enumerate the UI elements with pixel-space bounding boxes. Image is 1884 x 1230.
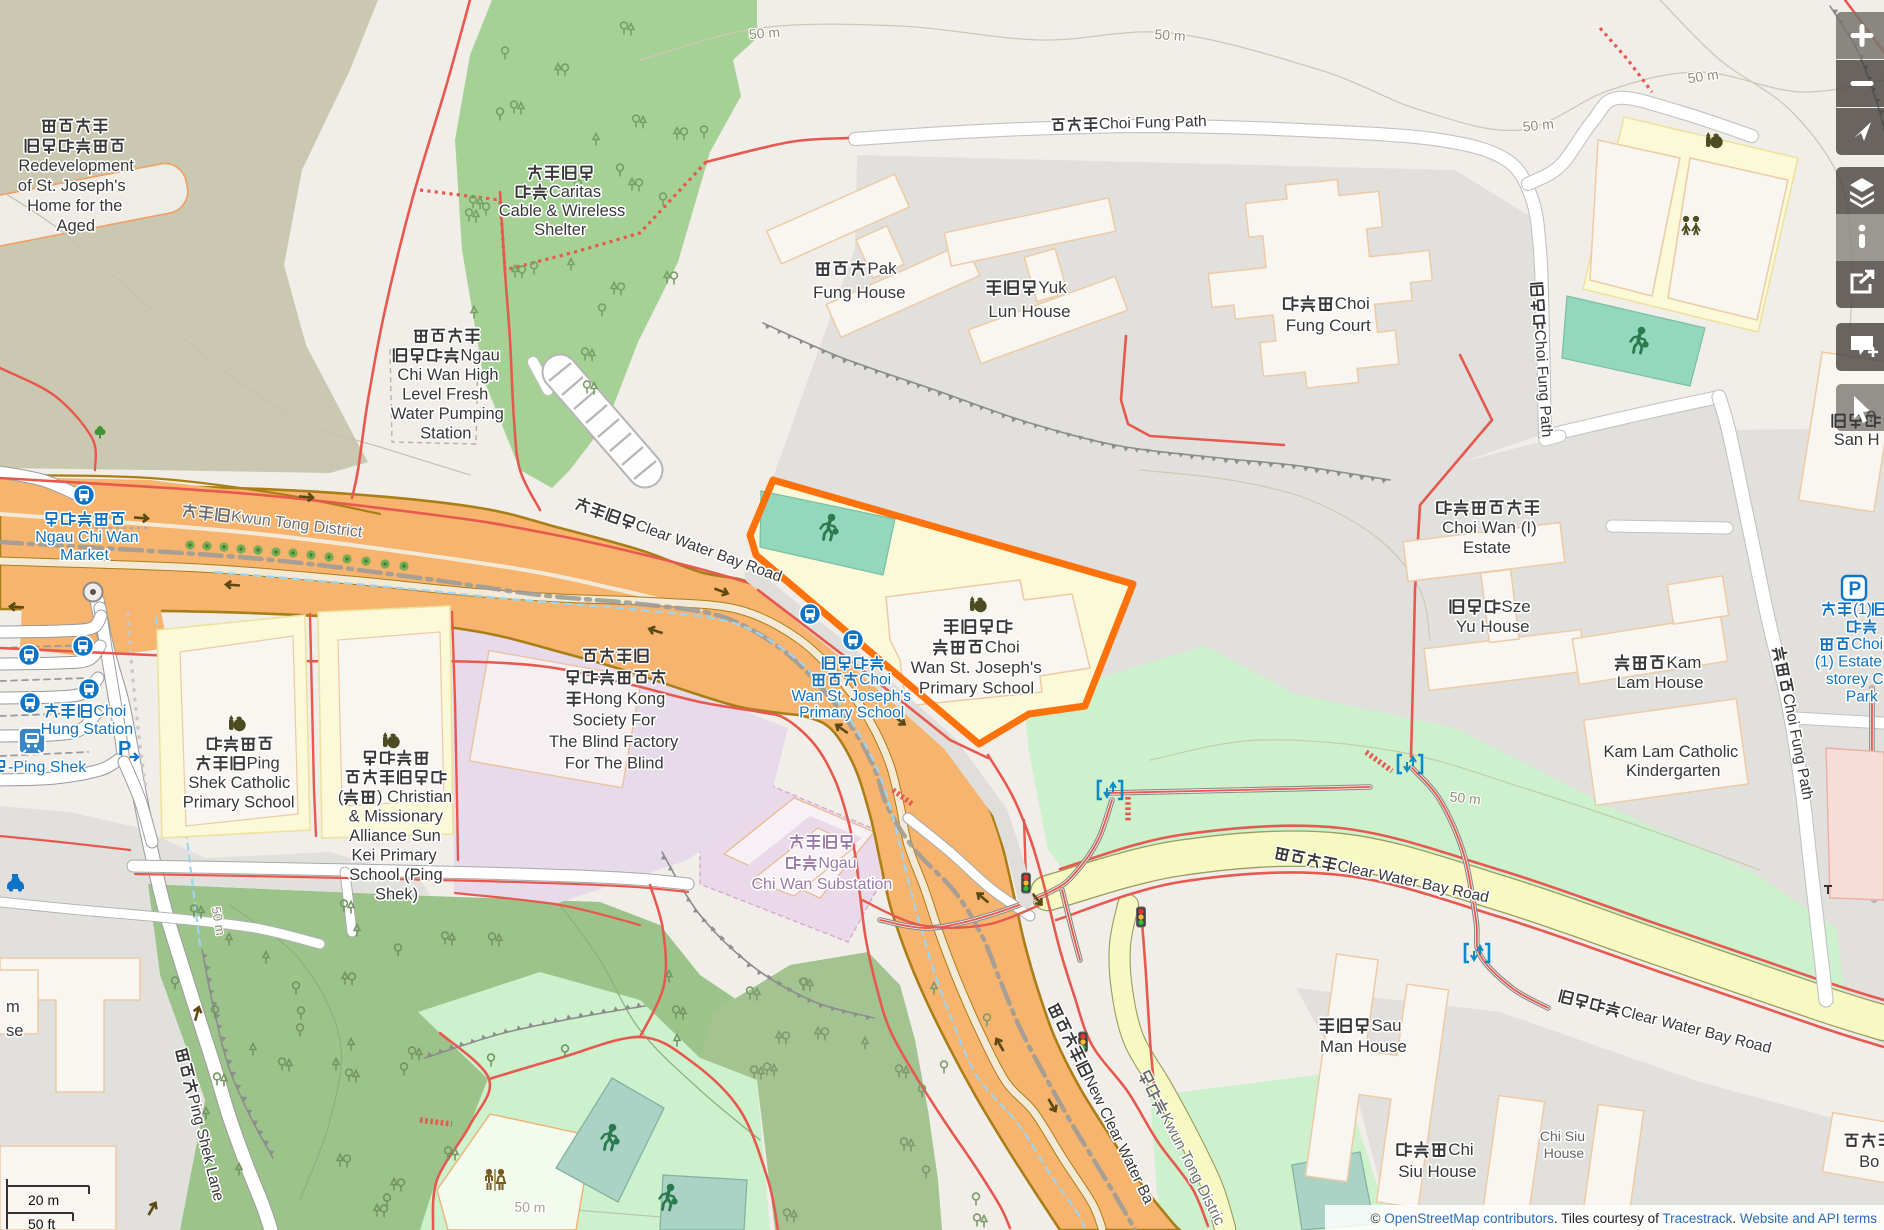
- svg-text:of St. Joseph's: of St. Joseph's: [18, 177, 126, 195]
- svg-text:Yuk: Yuk: [1038, 278, 1067, 297]
- svg-text:Shek): Shek): [375, 886, 418, 904]
- svg-text:(: (: [338, 788, 344, 806]
- svg-text:50 m: 50 m: [1154, 26, 1186, 44]
- svg-text:Choi: Choi: [859, 672, 891, 689]
- svg-text:Hong Kong: Hong Kong: [583, 690, 666, 708]
- svg-text:storey Car: storey Car: [1826, 671, 1884, 688]
- svg-text:Chi Siu: Chi Siu: [1540, 1128, 1585, 1144]
- svg-text:(1): (1): [1853, 601, 1872, 618]
- svg-text:Water Pumping: Water Pumping: [391, 405, 504, 423]
- svg-text:School (Ping: School (Ping: [349, 866, 443, 884]
- svg-text:San H: San H: [1834, 431, 1880, 449]
- svg-text:The Blind Factory: The Blind Factory: [549, 733, 679, 751]
- svg-text:Choi: Choi: [1335, 294, 1370, 313]
- svg-text:Kindergarten: Kindergarten: [1626, 762, 1720, 780]
- svg-text:50 m: 50 m: [748, 24, 780, 42]
- svg-text:Market: Market: [60, 547, 109, 564]
- svg-text:se: se: [6, 1022, 23, 1040]
- svg-text:Choi Wan (I): Choi Wan (I): [1442, 518, 1537, 537]
- svg-text:Chi Wan High: Chi Wan High: [397, 366, 498, 384]
- svg-text:Choi W: Choi W: [1851, 636, 1884, 653]
- svg-text:Kam: Kam: [1667, 653, 1702, 672]
- svg-text:Primary School: Primary School: [799, 705, 904, 722]
- svg-text:m: m: [6, 998, 20, 1016]
- svg-text:Bo: Bo: [1859, 1153, 1879, 1171]
- svg-text:Ngau: Ngau: [818, 855, 856, 872]
- svg-text:Society For: Society For: [572, 712, 656, 730]
- svg-text:Shelter: Shelter: [534, 221, 587, 239]
- svg-text:Kam Lam Catholic: Kam Lam Catholic: [1604, 743, 1739, 761]
- svg-text:50 ft: 50 ft: [28, 1216, 55, 1230]
- svg-text:?: ?: [1866, 407, 1876, 426]
- svg-text:Ping: Ping: [247, 755, 280, 773]
- svg-text:House: House: [1544, 1145, 1585, 1161]
- svg-text:Choi: Choi: [93, 703, 126, 720]
- svg-text:Primary School: Primary School: [183, 794, 295, 812]
- svg-text:Park: Park: [1846, 689, 1878, 706]
- svg-text:P: P: [1849, 579, 1862, 600]
- svg-text:Siu House: Siu House: [1398, 1162, 1476, 1181]
- svg-text:Lam House: Lam House: [1617, 673, 1704, 692]
- svg-text:Caritas: Caritas: [549, 183, 601, 201]
- svg-text:© OpenStreetMap contributors.: © OpenStreetMap contributors. Tiles cour…: [1371, 1211, 1878, 1226]
- svg-text:& Missionary: & Missionary: [349, 808, 444, 826]
- svg-text:50 m: 50 m: [1522, 115, 1555, 134]
- svg-text:Sze: Sze: [1501, 597, 1530, 616]
- svg-text:Hung Station: Hung Station: [41, 721, 134, 738]
- svg-text:Estate: Estate: [1463, 538, 1511, 557]
- svg-text:Redevelopment: Redevelopment: [18, 157, 134, 175]
- svg-text:Primary School: Primary School: [919, 679, 1034, 698]
- svg-text:50 m: 50 m: [514, 1198, 546, 1215]
- svg-text:Home for the: Home for the: [27, 197, 122, 215]
- svg-text:50 m: 50 m: [1449, 788, 1482, 807]
- svg-text:Man House: Man House: [1320, 1037, 1407, 1056]
- svg-text:Wan St. Joseph's: Wan St. Joseph's: [792, 688, 912, 705]
- svg-text:Fung House: Fung House: [813, 283, 906, 302]
- svg-text:Choi Fung Path: Choi Fung Path: [1099, 113, 1207, 133]
- svg-text:For The Blind: For The Blind: [565, 755, 664, 773]
- svg-text:Shek Catholic: Shek Catholic: [188, 774, 290, 792]
- svg-text:-Ping Shek: -Ping Shek: [8, 759, 87, 776]
- svg-text:Fung Court: Fung Court: [1286, 316, 1371, 335]
- svg-text:Ngau Chi Wan: Ngau Chi Wan: [35, 529, 138, 546]
- svg-text:Cable & Wireless: Cable & Wireless: [499, 202, 626, 220]
- svg-text:Chi Wan Substation: Chi Wan Substation: [752, 876, 893, 893]
- svg-text:Station: Station: [420, 425, 471, 443]
- svg-text:Aged: Aged: [57, 217, 96, 235]
- svg-text:) Christian: ) Christian: [377, 788, 452, 806]
- svg-text:Sau: Sau: [1371, 1016, 1401, 1035]
- svg-text:P: P: [118, 738, 131, 760]
- svg-text:Choi: Choi: [985, 638, 1020, 657]
- svg-text:20 m: 20 m: [28, 1192, 59, 1208]
- svg-text:Wan St. Joseph's: Wan St. Joseph's: [911, 658, 1042, 677]
- svg-text:(1) Estate Mu: (1) Estate Mu: [1815, 654, 1884, 671]
- svg-text:Pak: Pak: [867, 259, 897, 278]
- svg-text:Lun House: Lun House: [988, 302, 1070, 321]
- svg-text:Ngau: Ngau: [460, 347, 499, 365]
- svg-text:Yu House: Yu House: [1456, 617, 1530, 636]
- svg-text:Level Fresh: Level Fresh: [402, 386, 488, 404]
- svg-text:Alliance Sun: Alliance Sun: [349, 827, 441, 845]
- svg-text:Chi: Chi: [1448, 1140, 1474, 1159]
- svg-text:Kei Primary: Kei Primary: [352, 847, 438, 865]
